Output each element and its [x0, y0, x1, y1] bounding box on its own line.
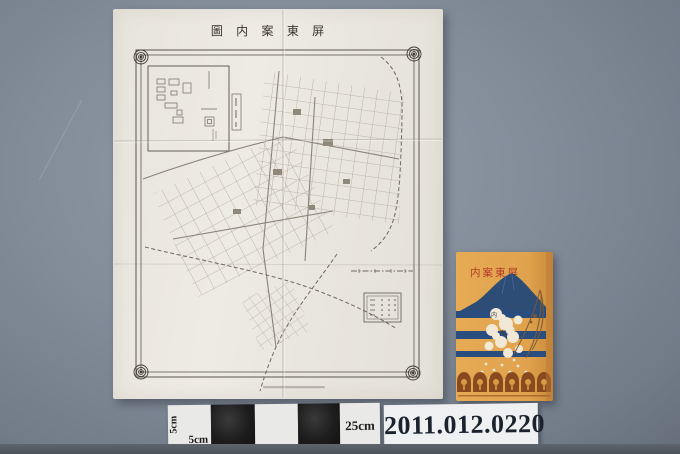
photo-backdrop: 圖 内 案 東 屏 [0, 0, 680, 454]
scale-label-25cm: 25cm [340, 418, 380, 434]
scale-segment [298, 403, 341, 447]
booklet-cover-art: 内案東屏 内 [456, 252, 553, 401]
scale-label-5cm-vertical: 5cm [168, 416, 179, 434]
legend-box [364, 293, 401, 322]
scale-segment: 25cm [340, 403, 381, 446]
scale-segment [211, 404, 256, 448]
scale-bar: 5cm 5cm 25cm [168, 403, 381, 449]
street-grid-c [241, 281, 311, 351]
catalog-number-label: 2011.012.0220 [384, 403, 539, 447]
inset-map [148, 66, 229, 151]
backdrop-scratch [39, 100, 82, 180]
corner-ornament-icon [134, 50, 148, 64]
map-drawing: 圖 内 案 東 屏 [113, 9, 443, 399]
inset-label [232, 94, 241, 130]
guide-booklet: 内案東屏 内 [456, 252, 553, 401]
backdrop-floor-edge [0, 444, 680, 454]
scale-segment: 5cm 5cm [168, 405, 212, 449]
booklet-spine-shade [546, 252, 553, 401]
boundary-dash-line [351, 269, 413, 273]
blossom-char: 案 [500, 329, 506, 337]
corner-ornament-icon [134, 365, 148, 379]
map-sheet: 圖 内 案 東 屏 [113, 9, 443, 399]
imprint-line [263, 386, 325, 388]
blossom-char: 内 [491, 311, 497, 319]
corner-ornament-icon [407, 47, 421, 61]
corner-ornament-icon [406, 366, 420, 380]
map-title: 圖 内 案 東 屏 [211, 23, 329, 38]
scale-segment [255, 404, 299, 448]
